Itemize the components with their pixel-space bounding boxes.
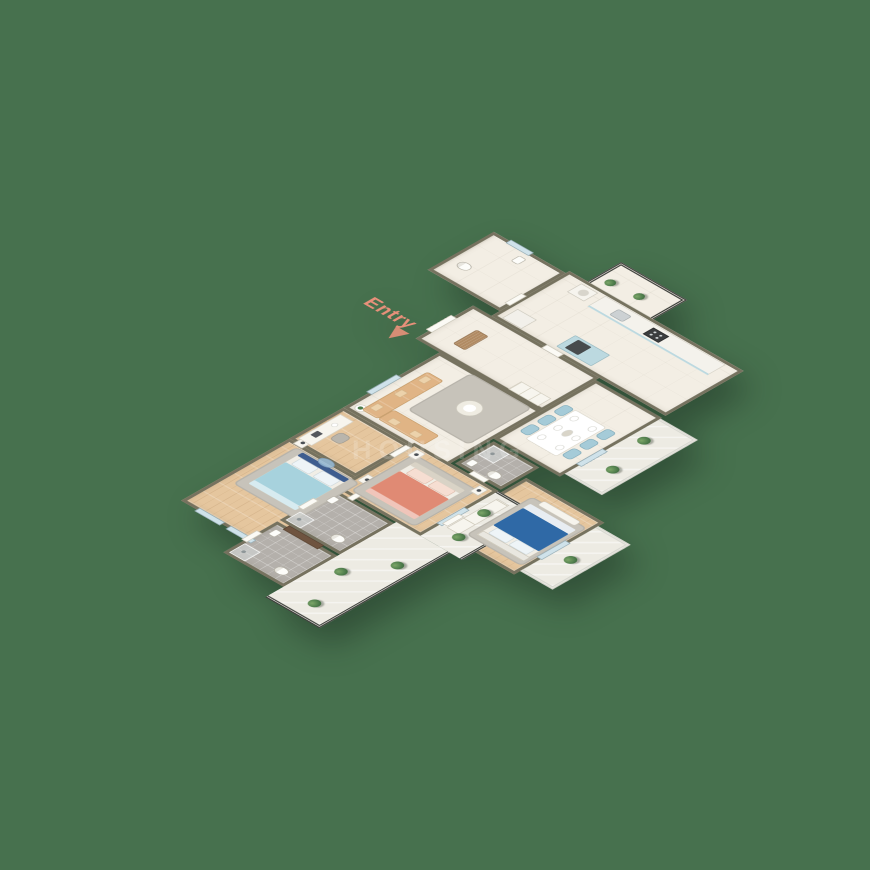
sofa-pillow — [393, 389, 408, 398]
sofa-pillow — [369, 403, 384, 412]
watermark: HOUSING — [352, 435, 527, 466]
plate — [535, 433, 548, 441]
desk-accessory — [330, 422, 340, 428]
plate — [586, 425, 599, 433]
floor-plan-page: { "entry": { "label": "Entry" }, "waterm… — [0, 0, 870, 870]
entry-label: Entry — [358, 295, 423, 332]
laptop — [310, 431, 323, 438]
entry-label-text: Entry — [358, 295, 423, 332]
plate — [551, 424, 564, 432]
plate — [568, 415, 581, 423]
plate — [553, 444, 566, 452]
sofa-pillow — [417, 376, 432, 385]
sofa-pillow — [387, 418, 402, 427]
plate — [569, 434, 582, 442]
island-sink-counter — [565, 340, 592, 356]
